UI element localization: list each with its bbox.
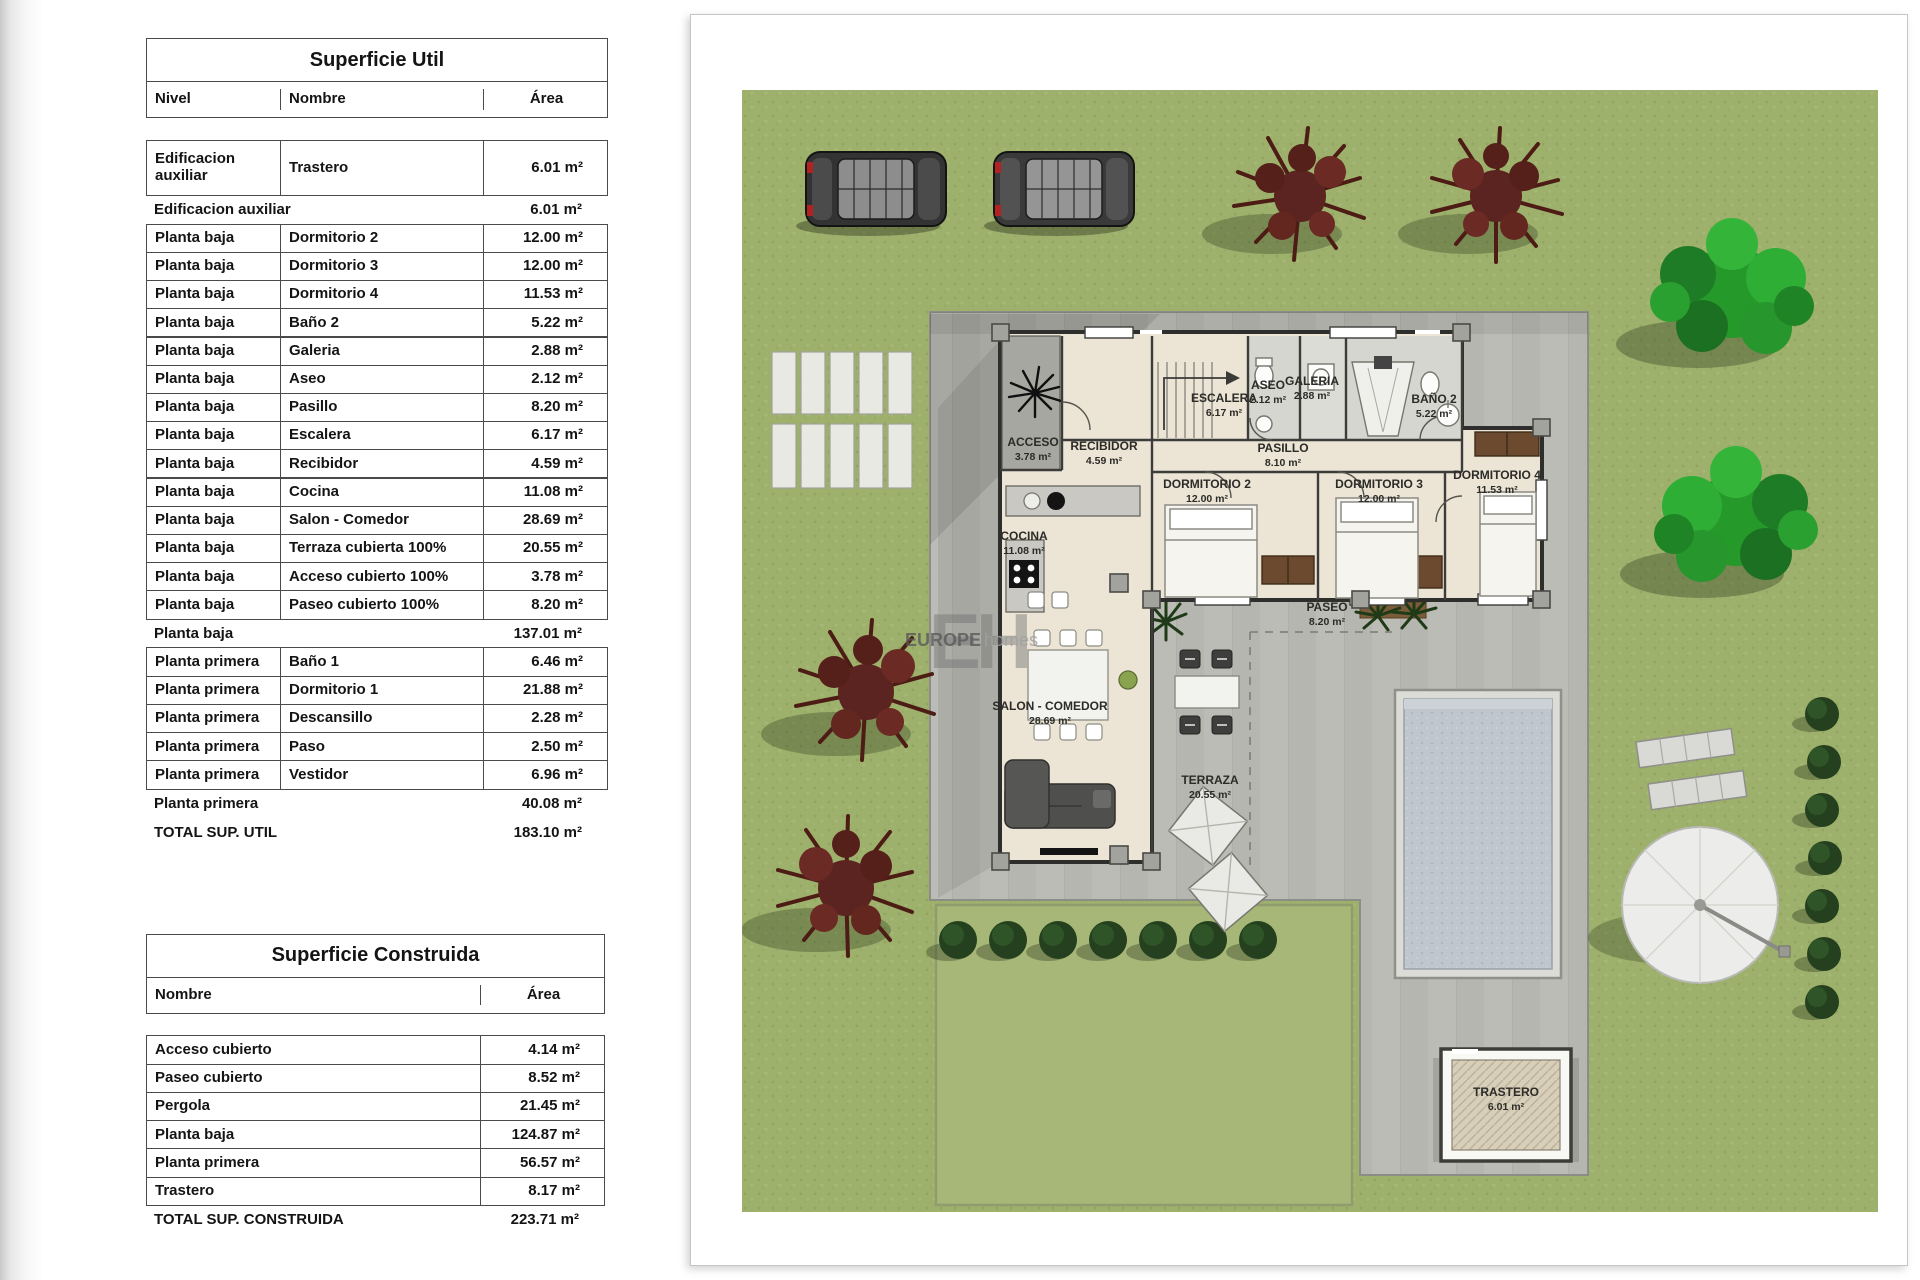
table-row: Planta primeraDescansillo2.28 m² — [146, 704, 608, 733]
table-row: Planta bajaCocina11.08 m² — [146, 477, 608, 506]
cell-nivel: Planta primera — [147, 708, 280, 729]
car-2 — [984, 152, 1134, 236]
cell-area: 6.01 m² — [483, 141, 609, 195]
cell-nombre: Paso — [280, 733, 483, 760]
table-row: Planta primera40.08 m² — [146, 790, 608, 819]
cell-area: 8.52 m² — [480, 1065, 606, 1092]
table-row: Planta bajaRecibidor4.59 m² — [146, 449, 608, 478]
cell-nombre: Cocina — [280, 478, 483, 505]
table-row: Planta bajaSalon - Comedor28.69 m² — [146, 506, 608, 535]
table-row: Planta bajaDormitorio 312.00 m² — [146, 252, 608, 281]
table-row: Acceso cubierto4.14 m² — [146, 1035, 605, 1064]
table-row: TOTAL SUP. CONSTRUIDA223.71 m² — [146, 1206, 605, 1235]
cell-nombre: Planta primera — [147, 1153, 480, 1174]
cell-area: 2.88 m² — [483, 337, 609, 364]
cell-area: 8.20 m² — [483, 591, 609, 618]
cell-area: 21.45 m² — [480, 1093, 606, 1120]
cell-area: 8.17 m² — [480, 1178, 606, 1205]
table-row: Planta primera56.57 m² — [146, 1148, 605, 1177]
col-area: Área — [480, 985, 606, 1006]
table-header: Nombre Área — [146, 978, 605, 1014]
cell-area: 4.14 m² — [480, 1036, 606, 1063]
cell-nombre: Baño 2 — [280, 309, 483, 336]
cell-nivel: Planta baja — [147, 595, 280, 616]
row-area: 223.71 m² — [479, 1206, 605, 1235]
cell-nombre: Recibidor — [280, 450, 483, 477]
cell-area: 11.08 m² — [483, 478, 609, 505]
cell-nivel: Planta baja — [147, 538, 280, 559]
table-row: Planta bajaDormitorio 212.00 m² — [146, 224, 608, 253]
table-row: Planta bajaDormitorio 411.53 m² — [146, 280, 608, 309]
cell-nombre: Paseo cubierto 100% — [280, 591, 483, 618]
table-row: Planta bajaTerraza cubierta 100%20.55 m² — [146, 534, 608, 563]
table-row: Planta baja137.01 m² — [146, 620, 608, 649]
table-title: Superficie Construida — [146, 934, 605, 978]
row-label: TOTAL SUP. UTIL — [146, 823, 482, 844]
floorplan-document: { "tables": [ { "title": "Superficie Uti… — [0, 0, 1920, 1280]
table-row: Planta primeraPaso2.50 m² — [146, 732, 608, 761]
cell-area: 56.57 m² — [480, 1149, 606, 1176]
cell-nombre: Dormitorio 3 — [280, 253, 483, 280]
svg-text:EUROPEhomes: EUROPEhomes — [905, 630, 1038, 650]
cell-nivel: Planta primera — [147, 765, 280, 786]
cell-nivel: Planta baja — [147, 397, 280, 418]
table-row: Planta bajaPaseo cubierto 100%8.20 m² — [146, 590, 608, 619]
cell-nombre: Aseo — [280, 366, 483, 393]
cell-nombre: Trastero — [280, 141, 483, 195]
pool — [1395, 690, 1561, 978]
cell-nombre: Salon - Comedor — [280, 507, 483, 534]
col-nombre: Nombre — [280, 89, 483, 110]
cell-nivel: Planta baja — [147, 425, 280, 446]
room-label: BAÑO 25.22 m² — [1411, 391, 1457, 420]
table-row: Planta bajaPasillo8.20 m² — [146, 393, 608, 422]
cell-area: 2.12 m² — [483, 366, 609, 393]
table-rows: Edificacion auxiliarTrastero6.01 m²Edifi… — [146, 140, 608, 848]
cell-nivel: Planta baja — [147, 313, 280, 334]
cell-nombre: Dormitorio 4 — [280, 281, 483, 308]
cell-nivel: Planta baja — [147, 284, 280, 305]
cell-nombre: Acceso cubierto — [147, 1040, 480, 1061]
table-row: Planta primeraVestidor6.96 m² — [146, 760, 608, 789]
table-row: Planta baja124.87 m² — [146, 1120, 605, 1149]
cell-area: 28.69 m² — [483, 507, 609, 534]
cell-nombre: Terraza cubierta 100% — [280, 535, 483, 562]
cell-area: 6.96 m² — [483, 761, 609, 788]
cell-nombre: Acceso cubierto 100% — [280, 563, 483, 590]
table-row: Planta bajaAcceso cubierto 100%3.78 m² — [146, 562, 608, 591]
cell-nivel: Planta baja — [147, 567, 280, 588]
cell-nivel: Planta baja — [147, 228, 280, 249]
cell-nombre: Baño 1 — [280, 648, 483, 675]
table-header: Nivel Nombre Área — [146, 82, 608, 118]
cell-nombre: Descansillo — [280, 705, 483, 732]
table-row: Planta bajaEscalera6.17 m² — [146, 421, 608, 450]
table-row: Trastero8.17 m² — [146, 1177, 605, 1206]
car-1 — [796, 152, 946, 236]
cell-nombre: Paseo cubierto — [147, 1068, 480, 1089]
cell-nivel: Planta baja — [147, 369, 280, 390]
cell-area: 2.50 m² — [483, 733, 609, 760]
table-row: Paseo cubierto8.52 m² — [146, 1064, 605, 1093]
table-row: Planta primeraBaño 16.46 m² — [146, 647, 608, 676]
tv — [1040, 848, 1098, 855]
cell-area: 6.46 m² — [483, 648, 609, 675]
cell-nombre: Planta baja — [147, 1125, 480, 1146]
cell-area: 124.87 m² — [480, 1121, 606, 1148]
cell-area: 11.53 m² — [483, 281, 609, 308]
acceso-porch — [1002, 336, 1060, 470]
cell-nombre: Escalera — [280, 422, 483, 449]
cell-area: 8.20 m² — [483, 394, 609, 421]
cell-nivel: Planta baja — [147, 256, 280, 277]
table-row: Pergola21.45 m² — [146, 1092, 605, 1121]
row-label: TOTAL SUP. CONSTRUIDA — [146, 1210, 479, 1231]
superficie-util-table: Superficie Util Nivel Nombre Área Edific… — [146, 38, 608, 848]
col-area: Área — [483, 89, 609, 110]
row-area: 40.08 m² — [482, 790, 608, 819]
scan-edge-shadow — [0, 0, 44, 1280]
table-row: Planta primeraDormitorio 121.88 m² — [146, 676, 608, 705]
row-area: 6.01 m² — [482, 196, 608, 225]
row-label: Edificacion auxiliar — [146, 200, 482, 221]
left-panel: Superficie Util Nivel Nombre Área Edific… — [146, 38, 616, 1235]
cell-nombre: Trastero — [147, 1181, 480, 1202]
table-row: Planta bajaBaño 25.22 m² — [146, 308, 608, 337]
cell-nombre: Vestidor — [280, 761, 483, 788]
cell-nivel: Edificacion auxiliar — [147, 149, 280, 186]
site-plan: ACCESO3.78 m²RECIBIDOR4.59 m²ESCALERA6.1… — [742, 90, 1878, 1212]
cell-area: 4.59 m² — [483, 450, 609, 477]
col-nombre: Nombre — [147, 985, 480, 1006]
cell-nivel: Planta baja — [147, 454, 280, 475]
cell-nombre: Galeria — [280, 337, 483, 364]
beds — [1165, 492, 1536, 598]
table-row: Planta bajaAseo2.12 m² — [146, 365, 608, 394]
cell-area: 2.28 m² — [483, 705, 609, 732]
table-rows: Acceso cubierto4.14 m²Paseo cubierto8.52… — [146, 1035, 605, 1234]
table-row: Planta bajaGaleria2.88 m² — [146, 336, 608, 365]
cell-nombre: Dormitorio 1 — [280, 677, 483, 704]
row-area: 183.10 m² — [482, 819, 608, 848]
row-label: Planta primera — [146, 794, 482, 815]
cell-area: 20.55 m² — [483, 535, 609, 562]
cell-nombre: Dormitorio 2 — [280, 225, 483, 252]
cell-nombre: Pasillo — [280, 394, 483, 421]
cell-nivel: Planta primera — [147, 737, 280, 758]
plant-pot — [1119, 671, 1137, 689]
garden-strip — [926, 905, 1352, 1205]
cell-nombre: Pergola — [147, 1096, 480, 1117]
row-area: 137.01 m² — [482, 620, 608, 649]
cell-nivel: Planta baja — [147, 510, 280, 531]
cell-area: 12.00 m² — [483, 225, 609, 252]
table-row: TOTAL SUP. UTIL183.10 m² — [146, 819, 608, 848]
cell-area: 12.00 m² — [483, 253, 609, 280]
cell-nivel: Planta baja — [147, 341, 280, 362]
cell-area: 3.78 m² — [483, 563, 609, 590]
superficie-construida-table: Superficie Construida Nombre Área Acceso… — [146, 934, 605, 1235]
col-nivel: Nivel — [147, 89, 280, 110]
cell-nivel: Planta primera — [147, 652, 280, 673]
cell-area: 5.22 m² — [483, 309, 609, 336]
table-row: Edificacion auxiliarTrastero6.01 m² — [146, 140, 608, 196]
cell-nivel: Planta baja — [147, 482, 280, 503]
table-row: Edificacion auxiliar6.01 m² — [146, 196, 608, 225]
cell-area: 21.88 m² — [483, 677, 609, 704]
table-title: Superficie Util — [146, 38, 608, 82]
row-label: Planta baja — [146, 624, 482, 645]
site-plan-card: ACCESO3.78 m²RECIBIDOR4.59 m²ESCALERA6.1… — [690, 14, 1908, 1266]
cell-nivel: Planta primera — [147, 680, 280, 701]
cell-area: 6.17 m² — [483, 422, 609, 449]
